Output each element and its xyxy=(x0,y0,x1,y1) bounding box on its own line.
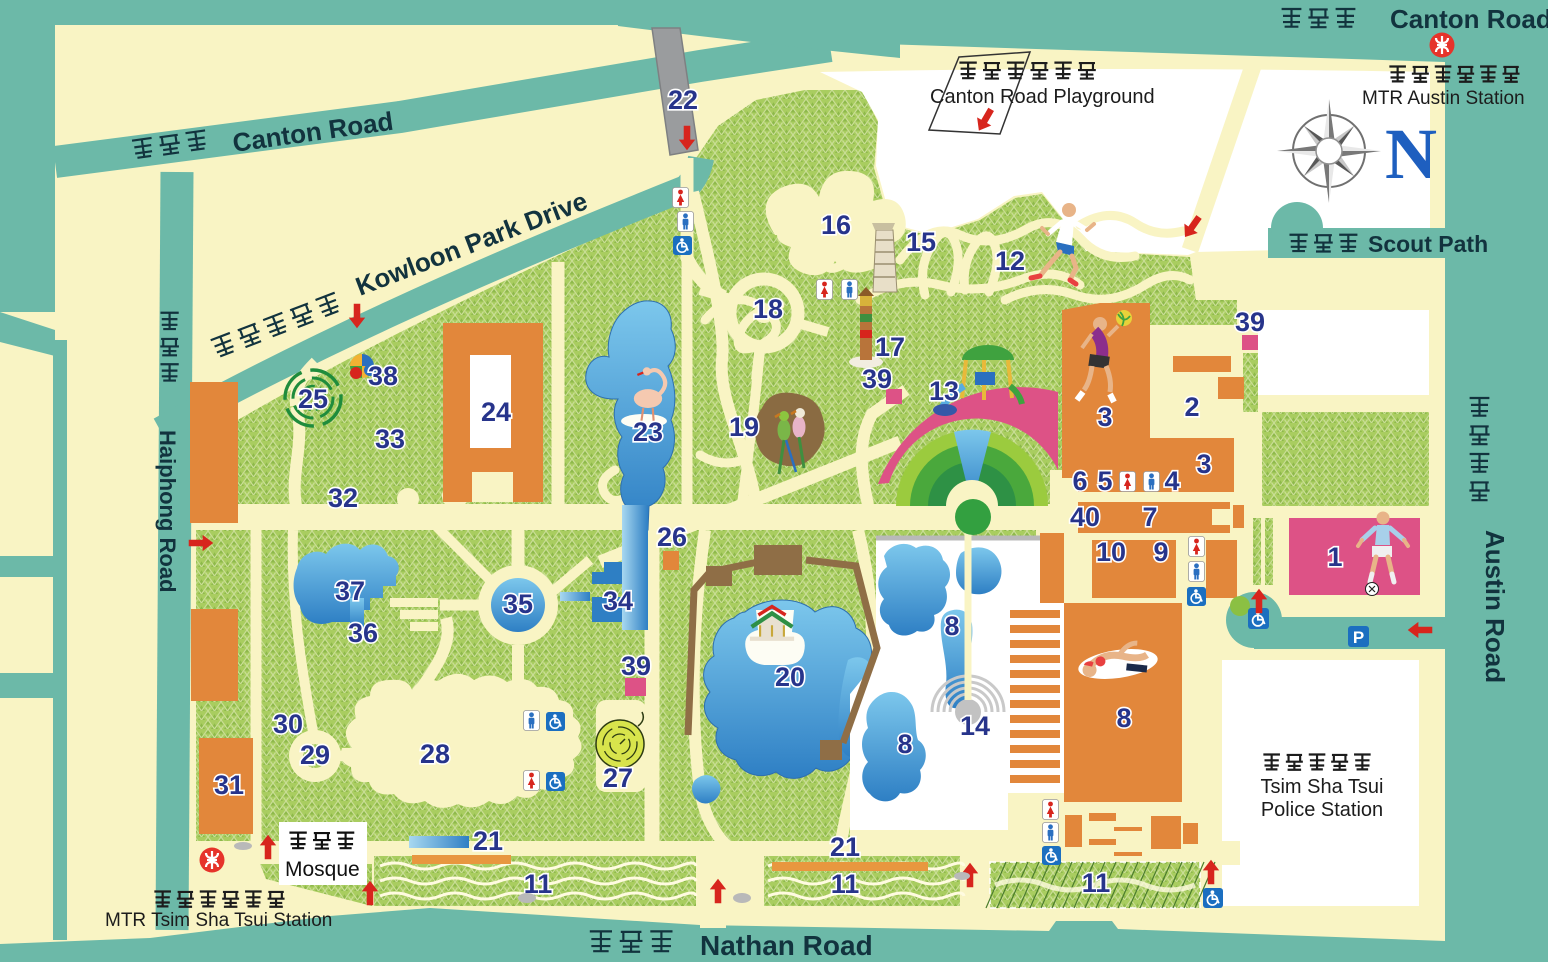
svg-text:P: P xyxy=(1353,628,1364,647)
svg-text:17: 17 xyxy=(875,332,905,362)
svg-text:Mosque: Mosque xyxy=(285,858,360,881)
svg-text:14: 14 xyxy=(960,711,990,741)
svg-text:Nathan Road: Nathan Road xyxy=(700,930,873,961)
svg-text:6: 6 xyxy=(1072,466,1087,496)
svg-text:25: 25 xyxy=(298,384,328,414)
svg-text:27: 27 xyxy=(603,763,633,793)
svg-text:7: 7 xyxy=(1142,502,1157,532)
svg-text:21: 21 xyxy=(830,832,860,862)
svg-text:23: 23 xyxy=(633,417,663,447)
svg-text:MTR Tsim Sha Tsui Station: MTR Tsim Sha Tsui Station xyxy=(105,910,332,931)
svg-text:39: 39 xyxy=(621,651,651,681)
svg-text:1: 1 xyxy=(1327,542,1342,572)
svg-text:32: 32 xyxy=(328,483,358,513)
svg-text:8: 8 xyxy=(1116,703,1131,733)
svg-text:34: 34 xyxy=(603,586,633,616)
svg-text:Haiphong Road: Haiphong Road xyxy=(155,430,180,593)
svg-text:39: 39 xyxy=(862,364,892,394)
svg-text:10: 10 xyxy=(1096,537,1126,567)
svg-text:8: 8 xyxy=(897,729,912,759)
svg-text:3: 3 xyxy=(1097,402,1112,432)
svg-text:9: 9 xyxy=(1153,537,1168,567)
svg-text:38: 38 xyxy=(368,361,398,391)
svg-text:15: 15 xyxy=(906,227,936,257)
svg-text:Canton Road Playground: Canton Road Playground xyxy=(930,86,1155,108)
svg-text:4: 4 xyxy=(1164,466,1179,496)
svg-text:37: 37 xyxy=(335,576,365,606)
svg-text:11: 11 xyxy=(831,869,860,899)
svg-text:13: 13 xyxy=(929,376,959,406)
svg-text:11: 11 xyxy=(1082,868,1111,898)
svg-text:24: 24 xyxy=(481,397,511,427)
svg-text:Police Station: Police Station xyxy=(1261,799,1383,821)
svg-text:33: 33 xyxy=(375,424,405,454)
svg-text:36: 36 xyxy=(348,618,378,648)
svg-text:30: 30 xyxy=(273,709,303,739)
svg-text:35: 35 xyxy=(503,589,533,619)
svg-text:29: 29 xyxy=(300,740,330,770)
svg-text:40: 40 xyxy=(1070,502,1100,532)
svg-text:MTR Austin Station: MTR Austin Station xyxy=(1362,88,1525,109)
svg-text:5: 5 xyxy=(1097,466,1112,496)
svg-text:3: 3 xyxy=(1196,449,1211,479)
svg-text:12: 12 xyxy=(995,246,1025,276)
svg-text:28: 28 xyxy=(420,739,450,769)
svg-text:19: 19 xyxy=(729,412,759,442)
svg-text:39: 39 xyxy=(1235,307,1265,337)
svg-text:20: 20 xyxy=(775,662,805,692)
svg-text:18: 18 xyxy=(753,294,783,324)
svg-text:Scout Path: Scout Path xyxy=(1368,231,1488,257)
svg-text:22: 22 xyxy=(668,85,698,115)
svg-text:8: 8 xyxy=(944,611,959,641)
svg-text:21: 21 xyxy=(473,826,503,856)
svg-text:Tsim Sha Tsui: Tsim Sha Tsui xyxy=(1260,776,1383,798)
svg-text:Austin Road: Austin Road xyxy=(1480,530,1510,683)
svg-text:N: N xyxy=(1385,114,1437,194)
svg-text:31: 31 xyxy=(214,770,244,800)
svg-text:Canton Road: Canton Road xyxy=(1390,4,1548,34)
svg-text:26: 26 xyxy=(657,522,687,552)
svg-text:2: 2 xyxy=(1184,392,1199,422)
svg-text:16: 16 xyxy=(821,210,851,240)
